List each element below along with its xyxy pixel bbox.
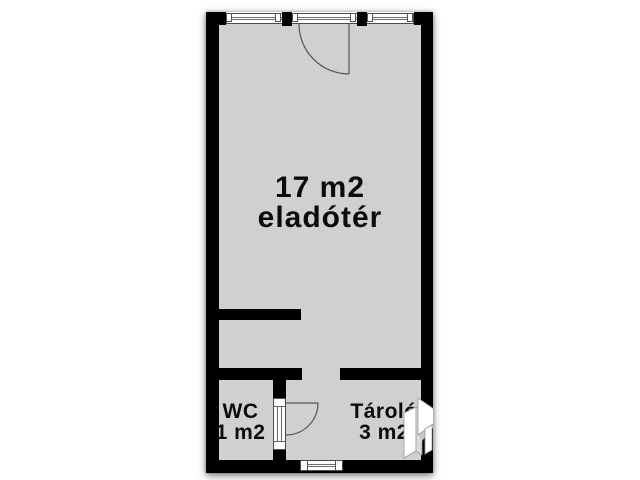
interior-wall-stub [206, 309, 301, 320]
wc-partition-lower [273, 450, 286, 473]
window-icon [300, 460, 343, 471]
window-frame-tick [275, 13, 281, 22]
window-mullion [357, 12, 367, 26]
wall-top-right-corner [414, 12, 433, 25]
room-area-storage: 3 m2 [341, 422, 427, 443]
room-area-sales: 17 m2 [219, 173, 421, 203]
window-frame-tick [292, 13, 298, 22]
wall-top-left-corner [206, 12, 226, 25]
window-frame-tick [350, 13, 356, 22]
window-frame-tick [226, 13, 232, 22]
room-name-sales: eladótér [219, 203, 421, 233]
window-mullion [282, 12, 292, 26]
room-label-storage: Tároló 3 m2 [341, 401, 427, 443]
window-icon [226, 13, 414, 24]
divider-wall-left [206, 368, 302, 380]
wc-partition-upper [273, 368, 286, 398]
floor-plan-canvas: 17 m2 eladótér WC 1 m2 Tároló 3 m2 [0, 0, 640, 480]
divider-wall-right [340, 368, 421, 380]
room-name-storage: Tároló [341, 401, 427, 422]
window-frame-tick [407, 13, 413, 22]
window-frame-tick [367, 13, 373, 22]
floor-plan: 17 m2 eladótér WC 1 m2 Tároló 3 m2 [206, 12, 433, 473]
room-label-sales: 17 m2 eladótér [219, 173, 421, 233]
room-label-wc: WC 1 m2 [206, 401, 275, 443]
room-area-wc: 1 m2 [206, 422, 275, 443]
room-name-wc: WC [206, 401, 275, 422]
